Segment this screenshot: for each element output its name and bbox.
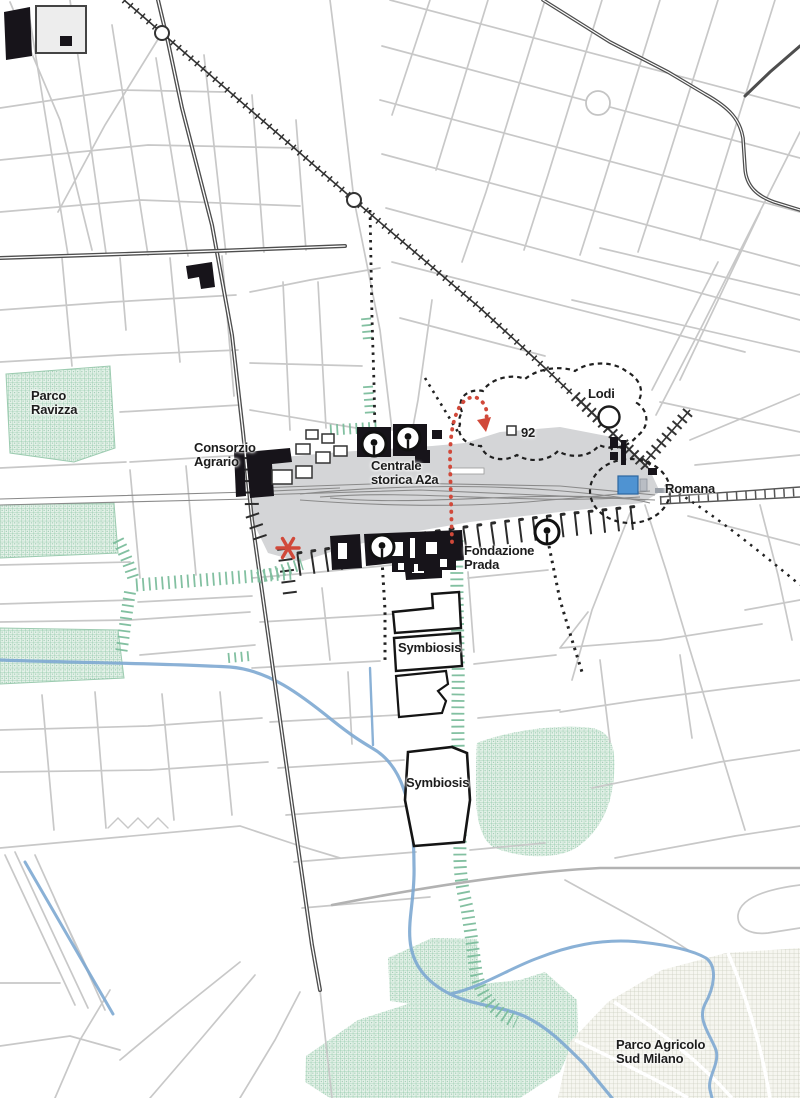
- label-centrale-a2a: Centrale storica A2a: [371, 459, 438, 486]
- site-pin-icon: [396, 426, 420, 450]
- green-promenade-paths: [118, 318, 516, 1022]
- rail-node-icon: [347, 193, 361, 207]
- site-pin-icon: [362, 432, 386, 456]
- label-lodi: Lodi: [588, 387, 615, 401]
- milan-scalo-romana-plan-map: Parco Ravizza Consorzio Agrario Centrale…: [0, 0, 800, 1098]
- label-symbiosis-north: Symbiosis: [398, 641, 461, 655]
- label-parco-ravizza: Parco Ravizza: [31, 389, 77, 416]
- red-arrowhead-icon: [477, 417, 491, 432]
- site-pin-icon: [370, 535, 394, 559]
- romana-station-icon: [618, 476, 638, 494]
- platform: [450, 468, 484, 474]
- label-symbiosis-south: Symbiosis: [406, 776, 469, 790]
- site-pin-icon: [535, 520, 559, 544]
- label-stop-92: 92: [521, 426, 535, 440]
- label-parco-agricolo: Parco Agricolo Sud Milano: [616, 1038, 705, 1065]
- romana-station-annex: [640, 479, 647, 491]
- rail-node-icon: [155, 26, 169, 40]
- map-graphics: [0, 0, 800, 1098]
- lodi-station-icon: [599, 407, 620, 428]
- label-fondazione-prada: Fondazione Prada: [464, 544, 534, 571]
- roundabout: [586, 91, 610, 115]
- label-romana: Romana: [665, 482, 715, 496]
- stop-92-square-icon: [507, 426, 516, 435]
- label-consorzio-agrario: Consorzio Agrario: [194, 441, 256, 468]
